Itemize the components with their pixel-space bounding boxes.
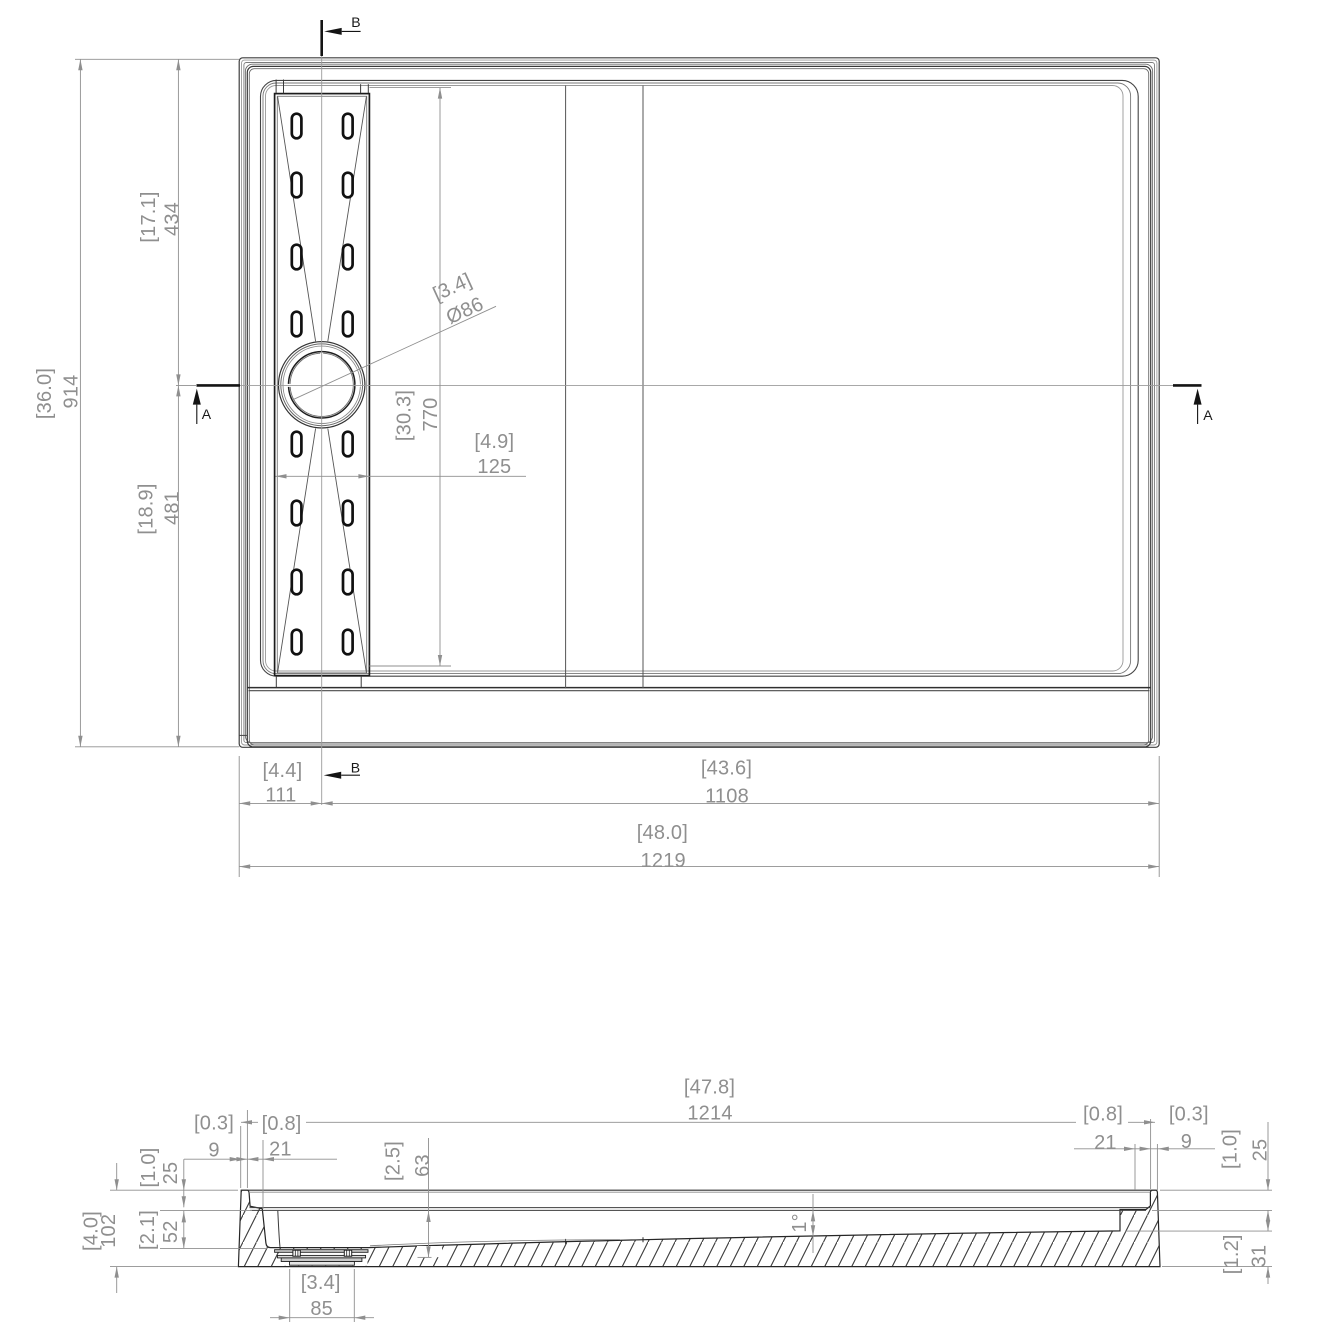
svg-text:[0.8]: [0.8] <box>1083 1103 1123 1125</box>
svg-text:[30.3]: [30.3] <box>394 390 416 441</box>
svg-text:31: 31 <box>1248 1245 1270 1268</box>
svg-text:21: 21 <box>1094 1132 1117 1154</box>
svg-text:[36.0]: [36.0] <box>34 368 56 419</box>
svg-text:[0.3]: [0.3] <box>1169 1103 1209 1125</box>
svg-text:102: 102 <box>98 1214 120 1248</box>
svg-text:A: A <box>202 406 212 422</box>
svg-text:[47.8]: [47.8] <box>684 1076 735 1098</box>
svg-text:B: B <box>351 14 361 30</box>
svg-text:[0.8]: [0.8] <box>262 1113 302 1135</box>
svg-text:[48.0]: [48.0] <box>637 822 688 844</box>
svg-text:[4.9]: [4.9] <box>474 431 514 453</box>
svg-text:B: B <box>351 760 361 776</box>
svg-text:[1.0]: [1.0] <box>138 1148 160 1188</box>
svg-text:[4.4]: [4.4] <box>262 760 302 782</box>
svg-text:434: 434 <box>162 202 184 236</box>
svg-text:9: 9 <box>208 1140 219 1162</box>
svg-text:[3.4]: [3.4] <box>301 1272 341 1294</box>
svg-text:21: 21 <box>269 1139 292 1161</box>
svg-text:52: 52 <box>160 1220 182 1243</box>
svg-text:[0.3]: [0.3] <box>194 1113 234 1135</box>
svg-text:85: 85 <box>310 1298 333 1320</box>
svg-text:25: 25 <box>1249 1139 1271 1162</box>
svg-text:481: 481 <box>162 491 184 525</box>
svg-text:914: 914 <box>61 375 83 409</box>
svg-text:[1.2]: [1.2] <box>1221 1234 1243 1274</box>
svg-text:9: 9 <box>1181 1131 1192 1153</box>
svg-text:1°: 1° <box>789 1213 811 1233</box>
svg-text:1214: 1214 <box>687 1103 732 1125</box>
svg-text:1108: 1108 <box>705 786 749 808</box>
svg-text:[18.9]: [18.9] <box>136 483 158 534</box>
svg-text:63: 63 <box>412 1154 434 1177</box>
svg-text:[2.5]: [2.5] <box>383 1141 405 1181</box>
svg-text:A: A <box>1203 407 1213 423</box>
svg-text:25: 25 <box>160 1162 182 1185</box>
svg-text:[2.1]: [2.1] <box>137 1210 159 1250</box>
svg-text:1219: 1219 <box>641 850 686 872</box>
svg-text:111: 111 <box>265 784 296 806</box>
svg-text:[1.0]: [1.0] <box>1220 1129 1242 1169</box>
svg-text:[43.6]: [43.6] <box>701 758 752 780</box>
svg-text:770: 770 <box>420 398 442 432</box>
svg-text:125: 125 <box>477 456 511 478</box>
svg-text:[17.1]: [17.1] <box>138 191 160 242</box>
